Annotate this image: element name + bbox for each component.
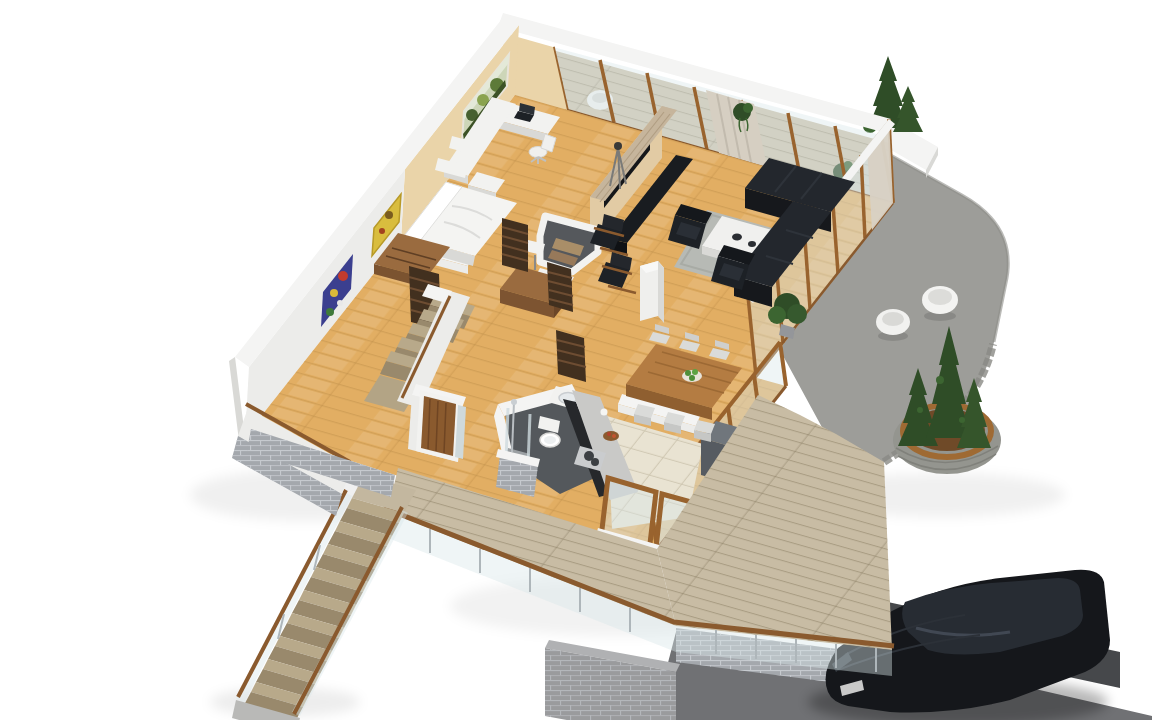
green-apple xyxy=(689,375,695,381)
plant-foliage xyxy=(768,306,786,324)
shower-head xyxy=(511,399,517,405)
green-apple xyxy=(692,369,698,375)
art-mark xyxy=(385,211,393,219)
art-mark xyxy=(338,271,348,281)
tub-chair-seat xyxy=(882,312,904,326)
tree-highlight xyxy=(959,417,965,423)
fruit xyxy=(607,432,611,436)
table-bowl xyxy=(732,234,742,241)
pedestal-side xyxy=(658,261,664,323)
wood-bowl xyxy=(603,431,619,441)
hob-burner xyxy=(591,458,599,466)
fruit xyxy=(612,434,616,438)
green-apple xyxy=(685,370,691,376)
art-mark xyxy=(330,289,338,297)
art-mark xyxy=(326,308,334,316)
tree-highlight xyxy=(936,376,944,384)
tub-chair-seat xyxy=(928,289,952,305)
plant-foliage xyxy=(743,103,753,113)
toilet-seat xyxy=(544,436,556,444)
retaining-stone-block xyxy=(545,640,680,720)
slatted-door xyxy=(556,330,586,382)
art-mark xyxy=(337,300,343,306)
entrance-door xyxy=(416,390,466,462)
tripod-head xyxy=(614,142,622,150)
art-mark xyxy=(379,228,385,234)
slatted-door xyxy=(547,262,573,312)
tree-highlight xyxy=(917,407,923,413)
white-pedestal xyxy=(640,261,664,323)
floorplan-scene xyxy=(0,0,1152,720)
slatted-door xyxy=(502,218,528,272)
table-bowl xyxy=(748,241,756,247)
floorplan-render-stage xyxy=(0,0,1152,720)
cup xyxy=(601,409,608,416)
slat-door-panel xyxy=(502,218,528,272)
plant-foliage xyxy=(787,304,807,324)
